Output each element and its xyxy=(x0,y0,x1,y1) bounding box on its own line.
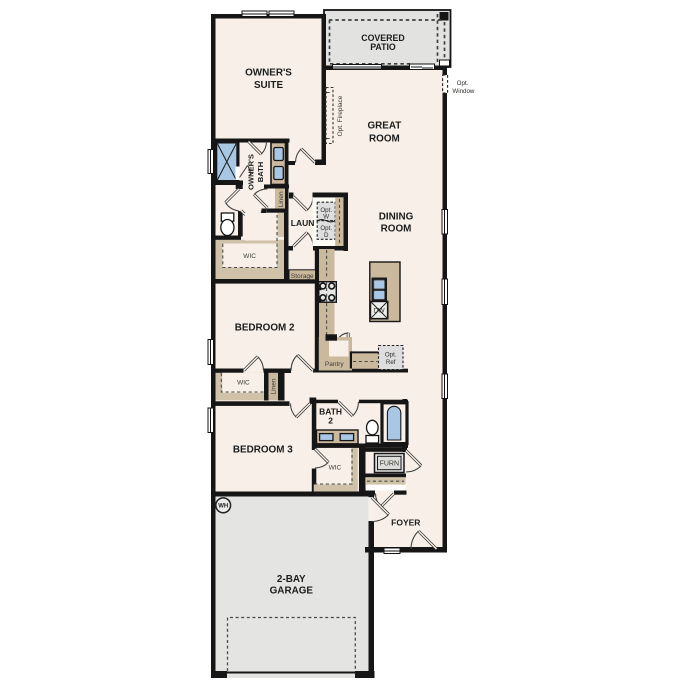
svg-text:GARAGE: GARAGE xyxy=(270,586,314,597)
svg-text:DINING: DINING xyxy=(379,211,414,222)
svg-text:Linen: Linen xyxy=(271,378,278,394)
svg-text:WH: WH xyxy=(218,503,228,509)
svg-text:DW: DW xyxy=(373,308,385,315)
svg-text:WIC: WIC xyxy=(237,380,250,387)
svg-text:Ref: Ref xyxy=(386,359,396,366)
svg-text:W: W xyxy=(323,213,329,220)
svg-text:GREAT: GREAT xyxy=(367,120,401,131)
svg-text:SUITE: SUITE xyxy=(254,80,283,91)
svg-text:FOYER: FOYER xyxy=(391,518,420,528)
svg-text:2: 2 xyxy=(328,415,333,425)
svg-text:WIC: WIC xyxy=(243,253,256,260)
svg-text:OWNER'S: OWNER'S xyxy=(245,68,292,79)
svg-text:BATH: BATH xyxy=(256,162,265,183)
svg-text:BEDROOM 3: BEDROOM 3 xyxy=(233,444,293,455)
svg-text:Window: Window xyxy=(452,88,475,95)
svg-text:BEDROOM 2: BEDROOM 2 xyxy=(235,322,295,333)
svg-text:D: D xyxy=(324,232,329,239)
svg-text:Opt. Fireplace: Opt. Fireplace xyxy=(337,95,344,136)
svg-text:Pantry: Pantry xyxy=(325,361,345,368)
svg-text:OWNER'S: OWNER'S xyxy=(247,154,256,190)
svg-text:WIC: WIC xyxy=(329,464,342,471)
svg-text:ROOM: ROOM xyxy=(381,223,412,234)
svg-text:Linen: Linen xyxy=(278,191,285,207)
svg-text:Opt.: Opt. xyxy=(385,351,397,358)
svg-text:Storage: Storage xyxy=(291,273,314,280)
svg-text:FURN: FURN xyxy=(380,461,399,468)
svg-text:Opt.: Opt. xyxy=(320,225,332,232)
svg-text:LAUN: LAUN xyxy=(291,218,315,228)
svg-text:Opt.: Opt. xyxy=(457,80,469,87)
svg-text:2-BAY: 2-BAY xyxy=(277,574,306,585)
svg-text:PATIO: PATIO xyxy=(370,42,396,52)
svg-text:ROOM: ROOM xyxy=(369,133,400,144)
